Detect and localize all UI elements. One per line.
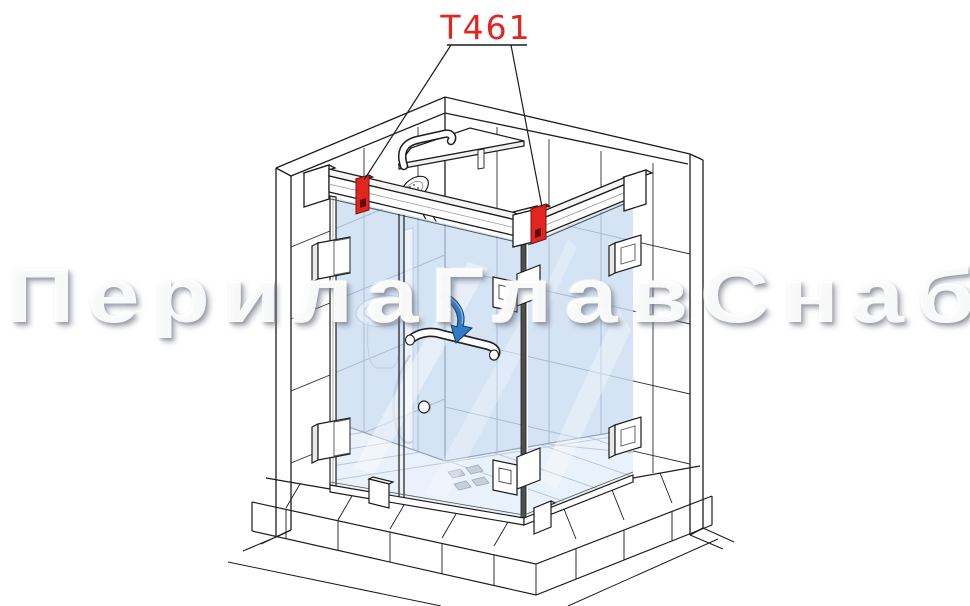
bracket-side — [312, 243, 318, 282]
left-wall-base-lines — [243, 530, 291, 551]
bar-wall-block-right — [624, 170, 646, 211]
curb-bottom-edge — [252, 525, 712, 595]
clamp-right-front — [531, 204, 546, 244]
handle-mount-left — [406, 335, 415, 345]
door-knob — [419, 401, 431, 413]
bottom-clamp-door — [369, 477, 393, 508]
clamp-hole — [621, 244, 635, 264]
floor-seams — [228, 539, 718, 606]
bar-wall-block-left — [304, 165, 329, 207]
clamp-side — [609, 243, 615, 276]
handle-mount-right — [490, 350, 499, 360]
clamp-hole — [621, 426, 635, 446]
knob — [419, 401, 430, 413]
clamp-front — [369, 479, 389, 508]
hinge-hole — [499, 468, 511, 484]
leader-line-right — [511, 45, 542, 207]
shelf-support — [478, 149, 484, 169]
catalog-illustration-page: T461 ПерилаГлавСнаб — [0, 0, 970, 606]
right-wall-end — [690, 154, 703, 535]
bracket-side — [312, 424, 318, 463]
part-label-group: T461 — [364, 8, 542, 207]
clamp-left-front — [356, 175, 369, 214]
part-label: T461 — [439, 8, 531, 47]
shower-enclosure-drawing: T461 — [0, 0, 970, 606]
hinge-hole — [499, 285, 511, 301]
clamp-side — [609, 425, 615, 458]
ghost-column — [404, 228, 413, 470]
